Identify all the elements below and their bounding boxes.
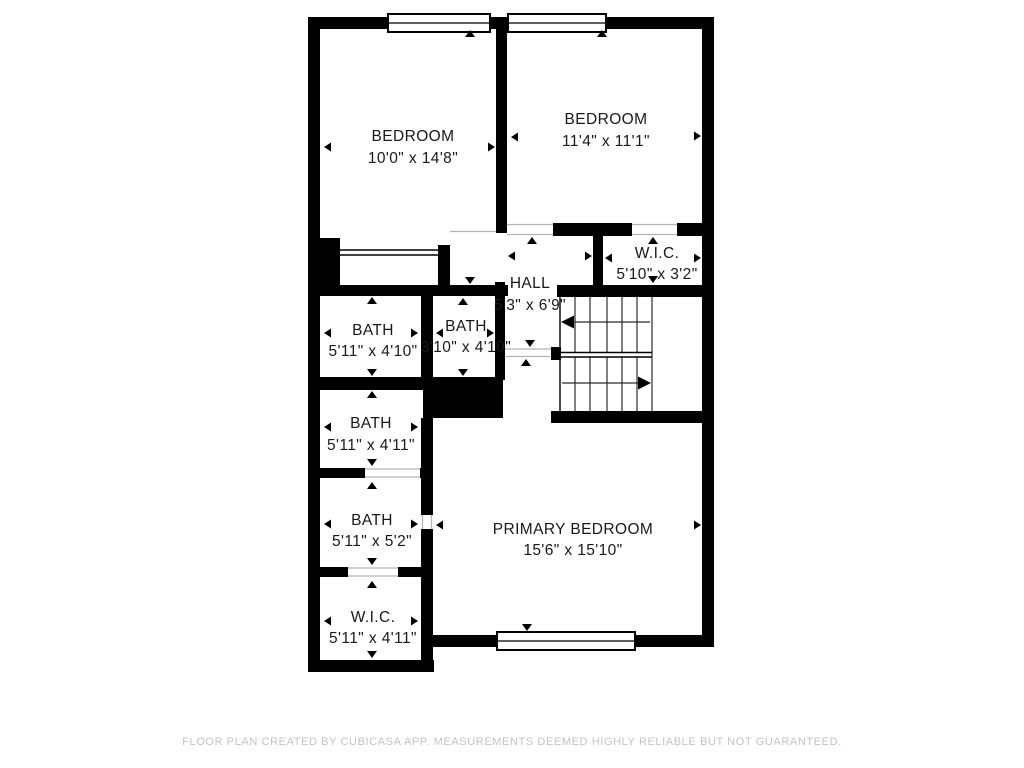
window-bedroom-1 [388,14,490,32]
stair-landing-divider [560,353,652,358]
room-dims-wic-bottom: 5'11" x 4'11" [329,630,417,647]
room-dims-bedroom-2: 11'4" x 11'1" [562,133,650,150]
wall-column-right-a [421,287,433,387]
staircase [560,297,652,411]
room-label-wic-bottom: W.I.C. [351,609,396,626]
stair-treads-lower [575,357,637,411]
room-label-primary-bedroom: PRIMARY BEDROOM [493,521,653,538]
wall-bottom-wic [308,660,434,672]
room-label-wic-top: W.I.C. [635,245,680,262]
wall-column-right-c [421,529,433,672]
room-dims-primary-bedroom: 15'6" x 15'10" [523,542,622,559]
stair-treads-upper [575,297,637,352]
wall-bedroom-divider [496,17,507,233]
wall-bedroom2-bottom-b [677,223,714,236]
room-dims-bedroom-1: 10'0" x 14'8" [368,150,458,167]
room-label-bath-mid: BATH [445,318,487,335]
wall-stairs-bottom [551,411,714,423]
room-label-bath-1: BATH [352,322,394,339]
room-dims-bath-2: 5'11" x 4'11" [327,437,415,454]
wall-center-mass [423,377,503,418]
wall-closet-mass-left [308,238,340,290]
dimension-ticks-down-icon [367,276,658,658]
wall-bath3-wic-divider-a [308,567,348,577]
room-dims-bath-3: 5'11" x 5'2" [332,533,412,550]
room-label-bath-2: BATH [350,415,392,432]
room-dims-bath-1: 5'11" x 4'10" [328,343,417,360]
room-label-bath-3: BATH [351,512,393,529]
wall-right [702,17,714,647]
room-label-hall: HALL [510,275,550,292]
room-dims-wic-top: 5'10" x 3'2" [616,266,697,283]
wall-stairs-top [557,285,714,297]
window-bedroom-2 [508,14,606,32]
wall-closet-right [438,245,450,287]
wall-bedroom2-bottom-a [553,223,632,236]
room-label-bedroom-1: BEDROOM [372,128,455,145]
window-primary-bedroom [497,632,635,650]
wall-bath1-bath2-divider [308,377,433,390]
floor-plan-page: BEDROOM 10'0" x 14'8" BEDROOM 11'4" x 11… [0,0,1024,768]
room-dims-bath-mid: 3'10" x 4'10" [421,339,511,356]
floor-plan-drawing: BEDROOM 10'0" x 14'8" BEDROOM 11'4" x 11… [0,0,1024,768]
wall-wic-top-left [593,233,603,290]
wall-bath2-bath3-divider-a [308,468,365,478]
room-label-bedroom-2: BEDROOM [565,111,648,128]
room-dims-hall: 5'3" x 6'9" [494,297,566,314]
footer-disclaimer: FLOOR PLAN CREATED BY CUBICASA APP. MEAS… [0,736,1024,748]
closet-sliding-door [340,250,438,255]
wall-bath2-bath3-divider-b [420,468,433,478]
wall-column-right-b [421,418,433,515]
wall-bath3-wic-divider-b [398,567,433,577]
